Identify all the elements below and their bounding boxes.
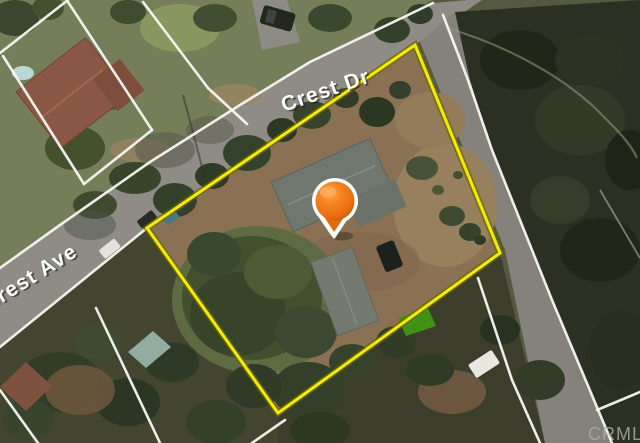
pin-head <box>316 182 355 221</box>
satellite-map[interactable]: Crest Dr Crest Dr Forest Ave Forest Ave … <box>0 0 640 443</box>
pool <box>12 66 34 80</box>
pin-highlight <box>320 187 336 198</box>
crmls-watermark: CRMLS <box>588 424 640 443</box>
